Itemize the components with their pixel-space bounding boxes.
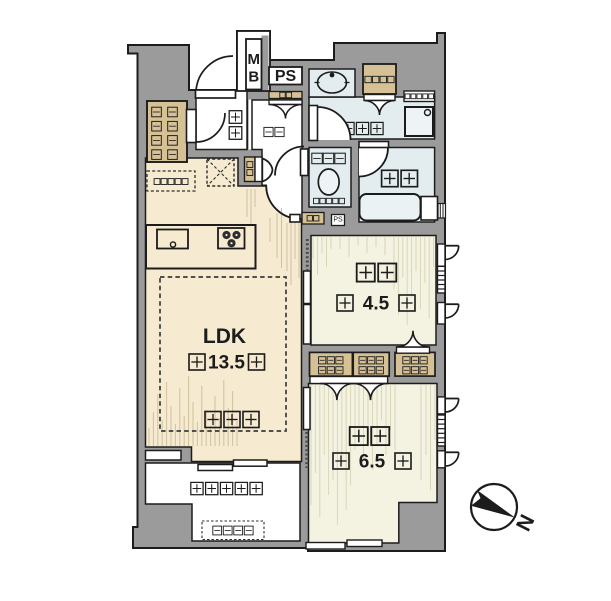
svg-text:B: B xyxy=(248,69,259,86)
svg-text:13.5: 13.5 xyxy=(208,353,245,374)
svg-text:LDK: LDK xyxy=(203,325,246,348)
svg-text:PS: PS xyxy=(333,217,343,224)
svg-text:6.5: 6.5 xyxy=(359,452,386,473)
svg-text:M: M xyxy=(248,51,261,68)
svg-text:4.5: 4.5 xyxy=(363,294,390,315)
svg-text:PS: PS xyxy=(275,68,297,85)
